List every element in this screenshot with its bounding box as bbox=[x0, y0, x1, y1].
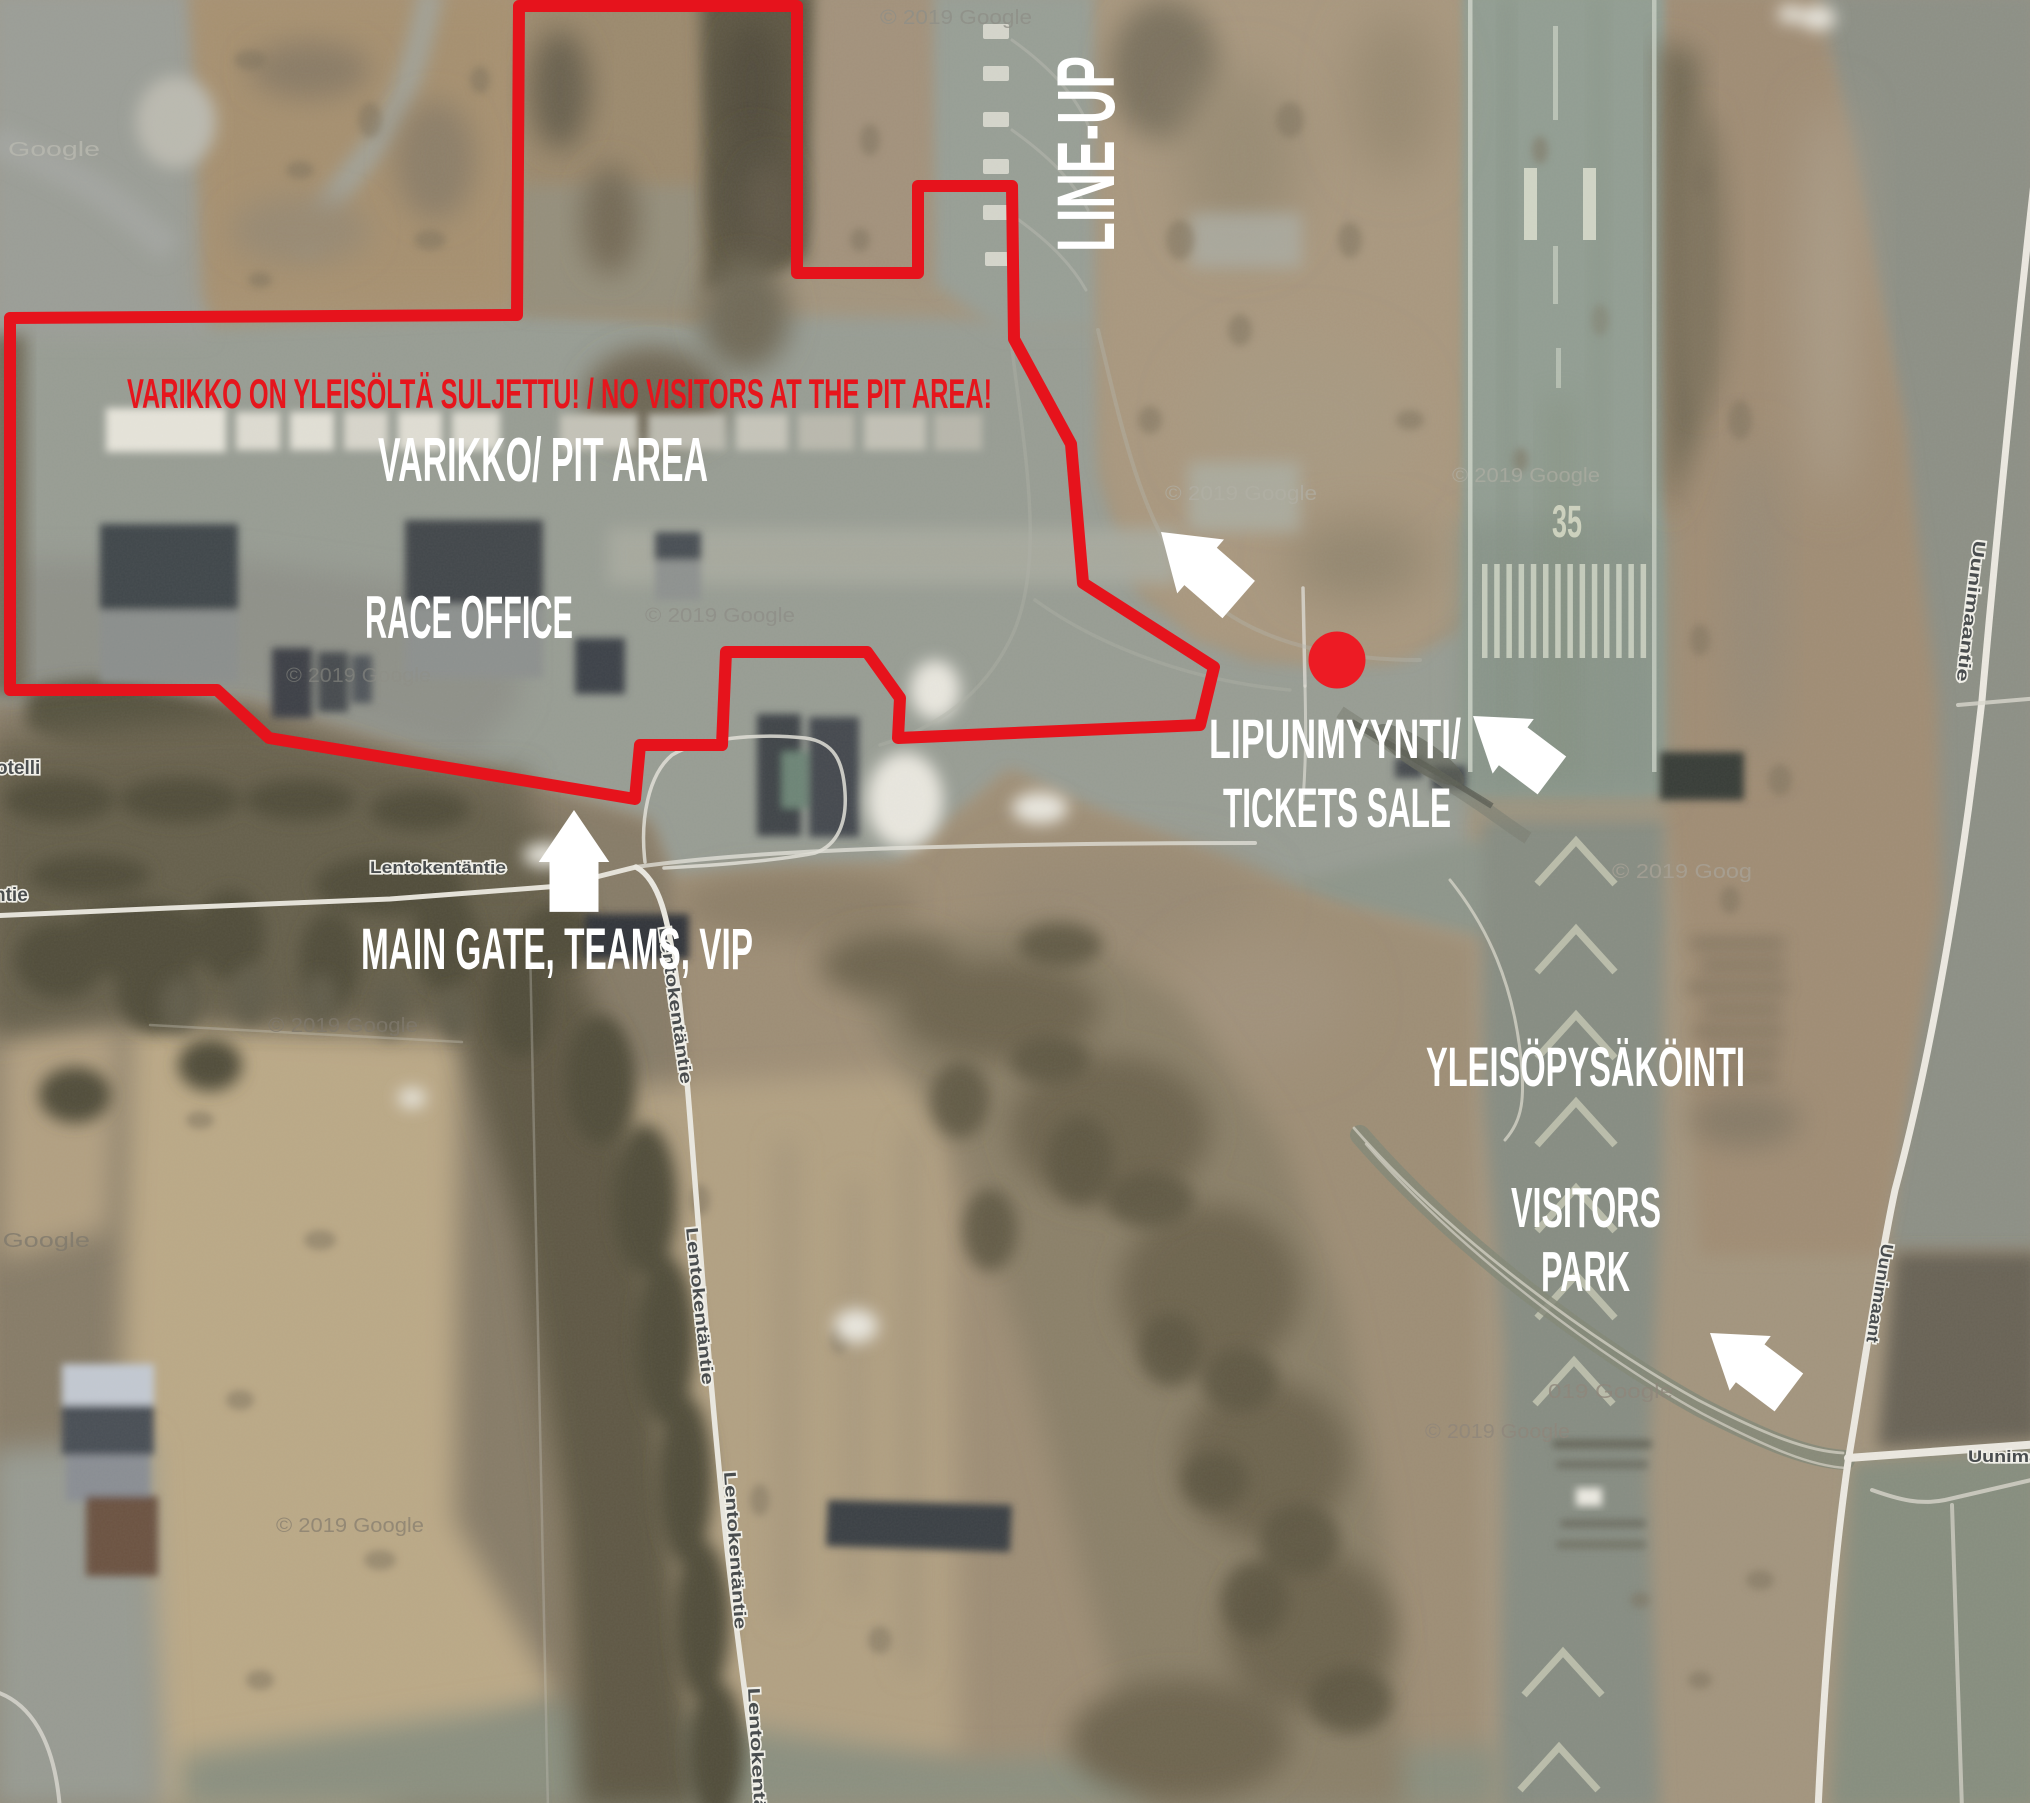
svg-text:VARIKKO ON YLEISÖLTÄ SULJETTU!: VARIKKO ON YLEISÖLTÄ SULJETTU! / NO VISI… bbox=[127, 370, 992, 417]
svg-text:TICKETS SALE: TICKETS SALE bbox=[1223, 776, 1451, 839]
svg-text:RACE OFFICE: RACE OFFICE bbox=[365, 584, 573, 651]
svg-text:LINE-UP: LINE-UP bbox=[1041, 56, 1132, 252]
svg-text:LIPUNMYYNTI/: LIPUNMYYNTI/ bbox=[1209, 707, 1461, 770]
svg-text:VISITORS: VISITORS bbox=[1511, 1176, 1661, 1240]
svg-text:VARIKKO/ PIT AREA: VARIKKO/ PIT AREA bbox=[378, 426, 708, 495]
svg-text:MAIN GATE, TEAMS, VIP: MAIN GATE, TEAMS, VIP bbox=[361, 917, 753, 982]
svg-text:YLEISÖPYSÄKÖINTI: YLEISÖPYSÄKÖINTI bbox=[1426, 1035, 1745, 1098]
svg-text:PARK: PARK bbox=[1541, 1240, 1630, 1304]
